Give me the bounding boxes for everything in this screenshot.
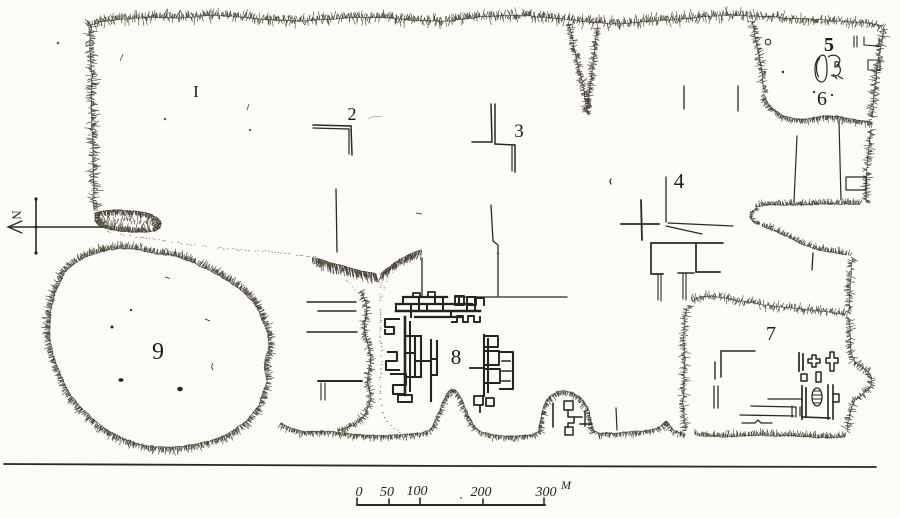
svg-text:0: 0 [356,485,363,500]
svg-text:M: M [560,478,572,492]
svg-text:200: 200 [471,485,492,500]
svg-text:7: 7 [766,323,776,345]
svg-text:2: 2 [348,104,357,124]
svg-text:N: N [9,210,24,220]
svg-text:50: 50 [380,485,394,500]
svg-text:6: 6 [817,88,827,110]
svg-text:3: 3 [514,121,524,142]
svg-text:100: 100 [407,484,428,499]
svg-text:5: 5 [824,34,834,56]
svg-text:300: 300 [535,485,557,500]
svg-text:9: 9 [152,339,164,365]
svg-text:I: I [193,82,199,101]
svg-text:4: 4 [674,169,685,193]
svg-text:8: 8 [451,345,462,369]
